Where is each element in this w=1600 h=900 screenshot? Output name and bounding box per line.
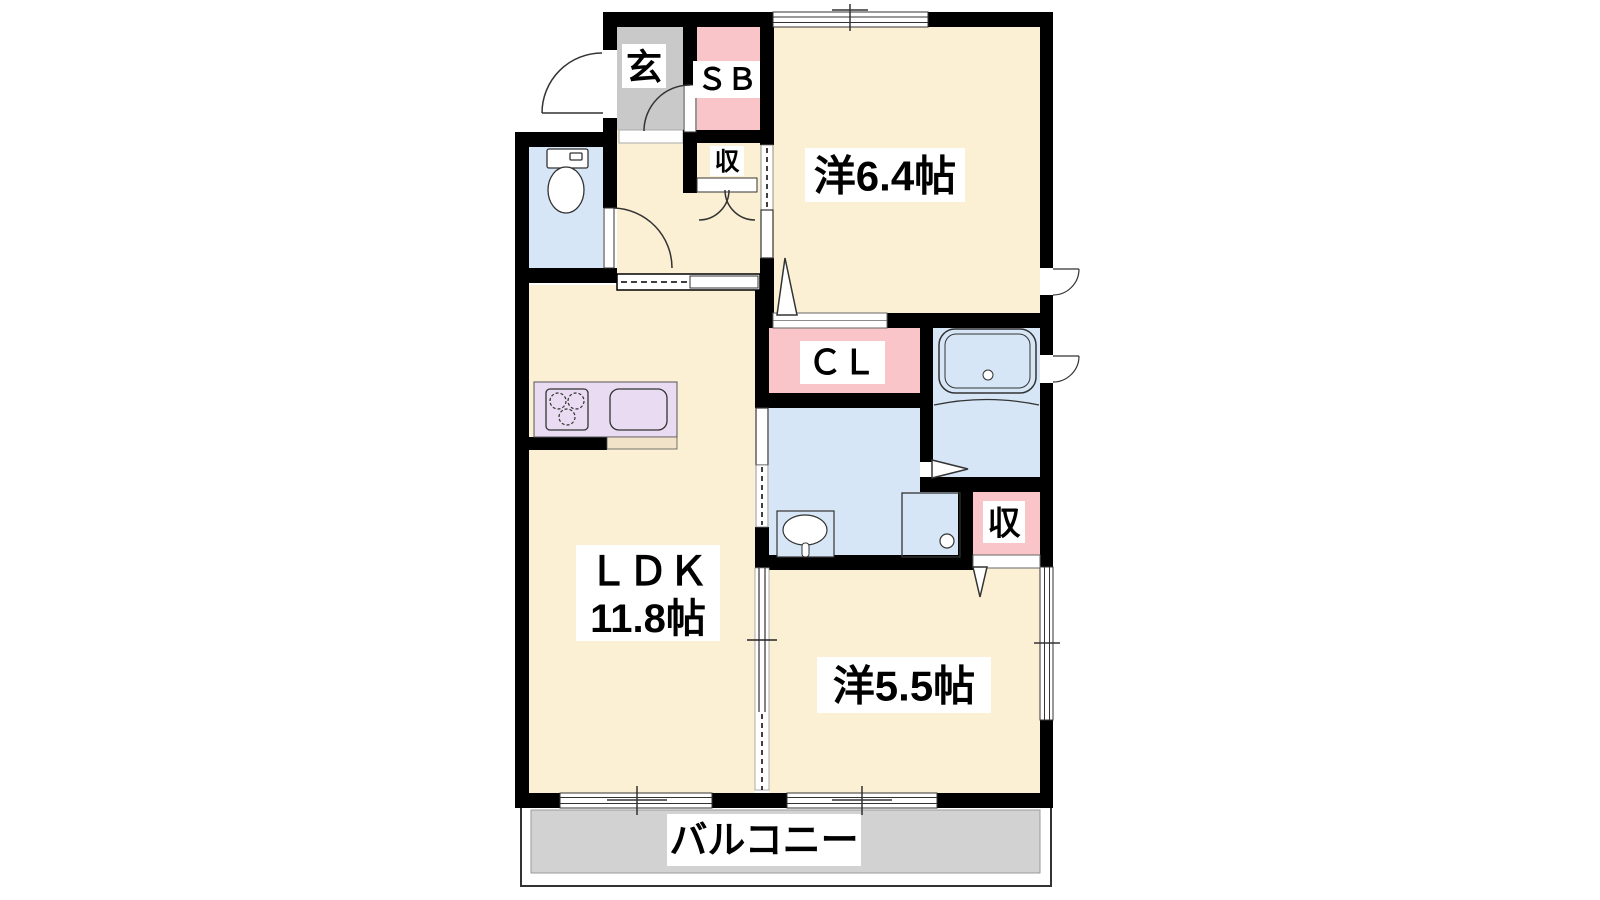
ldk-label: ＬＤＫ xyxy=(588,550,708,594)
western-room-2-label: 洋5.5帖 xyxy=(833,663,975,710)
floor-plan: 玄 ＳＢ 収 洋6.4帖 ＣＬ 収 ＬＤＫ 11.8帖 洋5.5帖 バルコニー xyxy=(0,0,1600,900)
genkan-label: 玄 xyxy=(626,47,662,88)
western-room-1-sliding-door-icon xyxy=(761,145,773,258)
ldk-floor xyxy=(529,285,755,793)
genkan-step xyxy=(619,130,683,143)
balcony-label: バルコニー xyxy=(669,820,858,862)
hallway-ldk-sliding-door-icon xyxy=(617,274,760,290)
washbasin-icon xyxy=(777,511,834,557)
floor-plan-page: 玄 ＳＢ 収 洋6.4帖 ＣＬ 収 ＬＤＫ 11.8帖 洋5.5帖 バルコニー xyxy=(0,0,1600,900)
storage-lower-label: 収 xyxy=(988,505,1022,542)
closet-label: ＣＬ xyxy=(808,344,876,382)
counter-edge xyxy=(607,437,677,449)
ldk-size-label: 11.8帖 xyxy=(590,597,706,641)
shoebox-label: ＳＢ xyxy=(697,64,757,97)
storage-upper-label: 収 xyxy=(714,148,740,176)
western-room-1-label: 洋6.4帖 xyxy=(814,153,956,200)
washroom-sliding-door-icon xyxy=(756,408,768,527)
